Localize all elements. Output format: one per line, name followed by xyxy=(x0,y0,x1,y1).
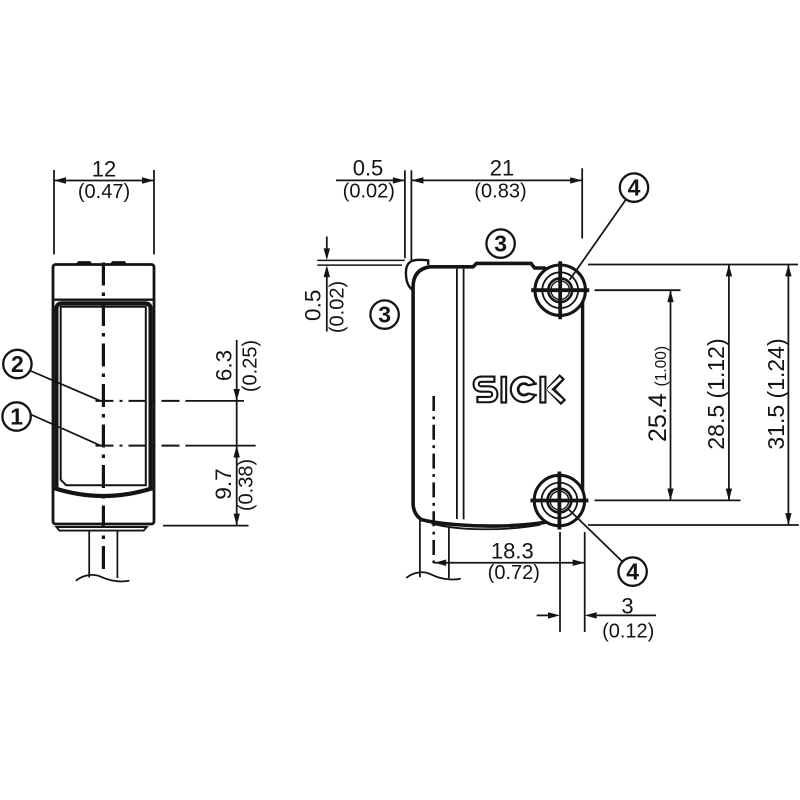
svg-text:(0.12): (0.12) xyxy=(602,621,654,643)
svg-text:4: 4 xyxy=(626,558,639,584)
svg-text:0.5: 0.5 xyxy=(353,156,384,181)
svg-text:(0.72): (0.72) xyxy=(488,562,540,584)
svg-text:1: 1 xyxy=(10,403,23,429)
svg-text:21: 21 xyxy=(490,156,514,181)
svg-text:28.5 (1.12): 28.5 (1.12) xyxy=(703,338,729,449)
svg-text:(0.38): (0.38) xyxy=(236,459,258,511)
svg-text:6.3: 6.3 xyxy=(212,350,237,381)
svg-text:9.7: 9.7 xyxy=(211,468,236,499)
svg-text:3: 3 xyxy=(494,230,507,256)
svg-text:(0.02): (0.02) xyxy=(343,181,395,203)
svg-text:3: 3 xyxy=(378,301,391,327)
svg-text:(0.25): (0.25) xyxy=(240,340,262,392)
svg-text:(0.83): (0.83) xyxy=(474,181,526,203)
svg-text:12: 12 xyxy=(92,157,116,182)
svg-text:0.5: 0.5 xyxy=(301,290,326,321)
svg-text:2: 2 xyxy=(11,351,24,377)
svg-text:3: 3 xyxy=(621,594,633,619)
svg-text:(0.02): (0.02) xyxy=(327,281,349,333)
svg-text:4: 4 xyxy=(628,174,641,200)
svg-text:31.5 (1.24): 31.5 (1.24) xyxy=(763,338,789,449)
svg-text:(0.47): (0.47) xyxy=(78,181,130,203)
svg-text:18.3: 18.3 xyxy=(491,539,534,564)
